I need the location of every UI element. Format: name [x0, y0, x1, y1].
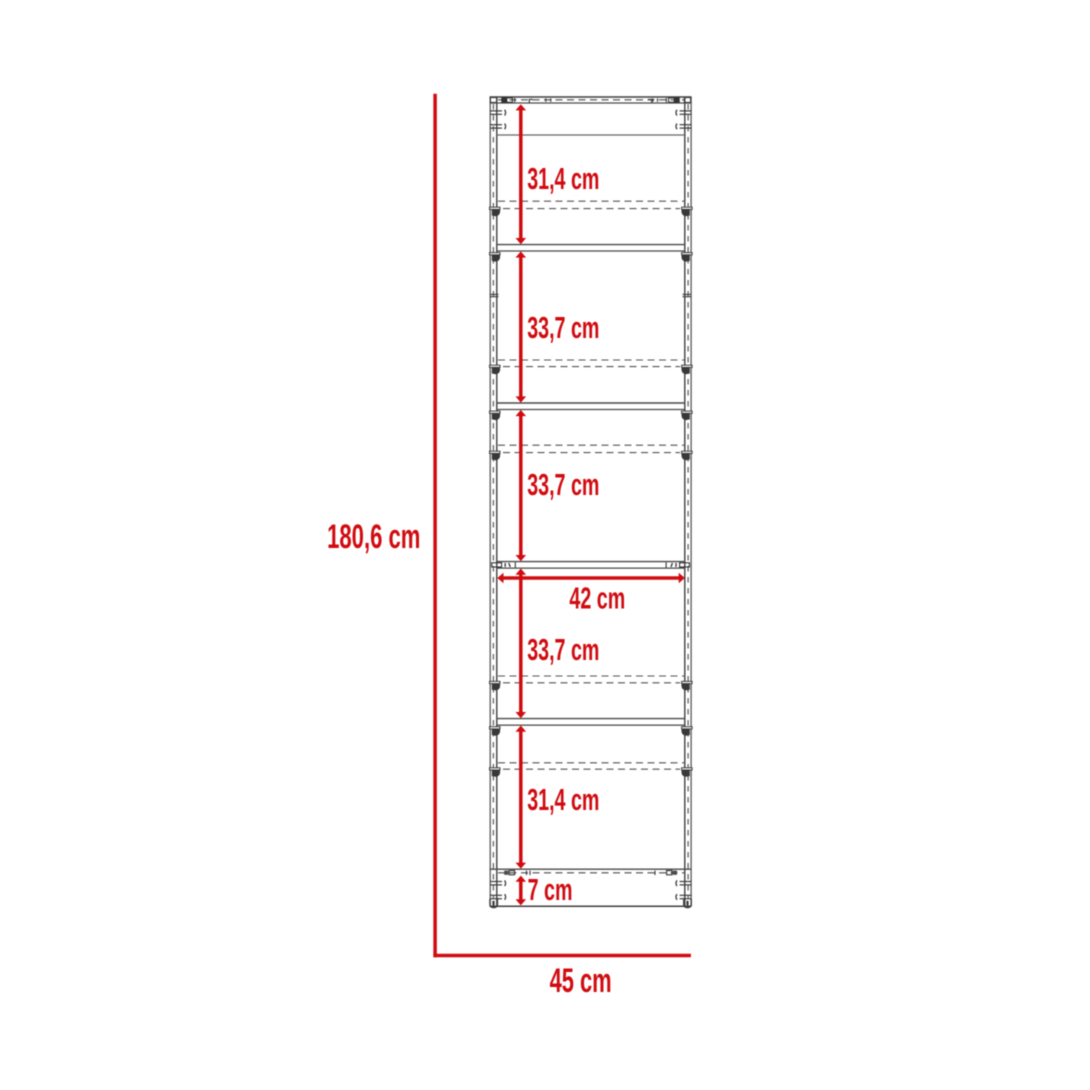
svg-text:180,6 cm: 180,6 cm — [327, 518, 420, 556]
svg-text:7 cm: 7 cm — [528, 871, 573, 907]
svg-text:45 cm: 45 cm — [550, 962, 612, 1000]
svg-text:31,4 cm: 31,4 cm — [527, 781, 599, 817]
svg-text:33,7 cm: 33,7 cm — [527, 309, 599, 345]
svg-text:42 cm: 42 cm — [569, 580, 625, 616]
svg-text:33,7 cm: 33,7 cm — [527, 631, 599, 667]
svg-text:31,4 cm: 31,4 cm — [527, 160, 599, 196]
svg-text:33,7 cm: 33,7 cm — [527, 466, 599, 502]
